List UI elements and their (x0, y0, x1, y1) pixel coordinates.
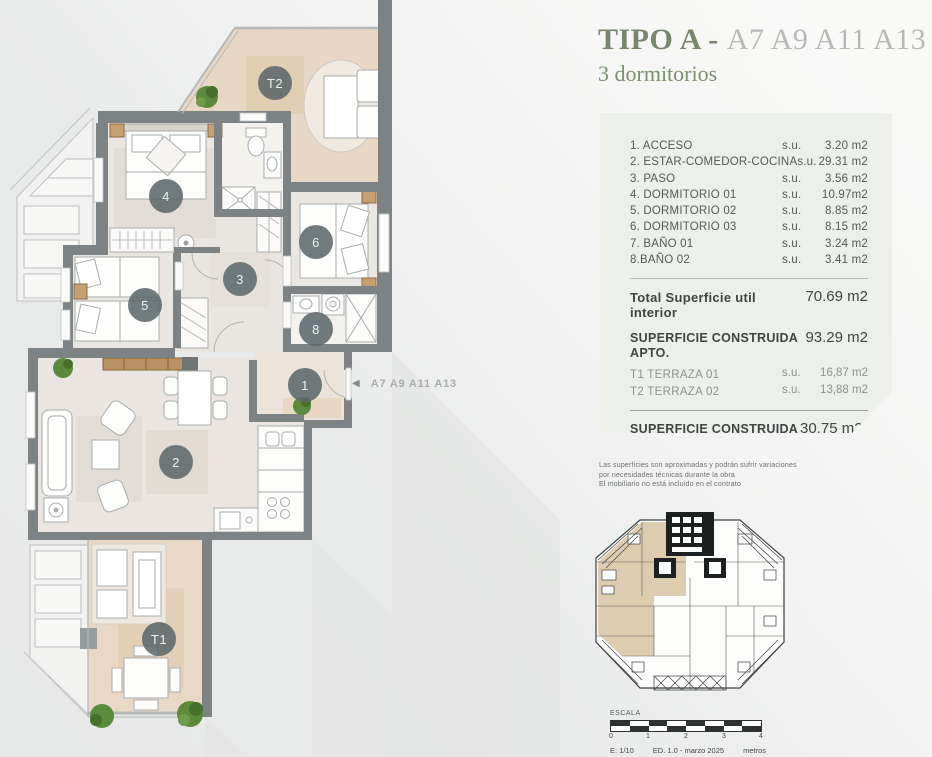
surface-table-card: 1. ACCESOs.u.3.20 m2 2. ESTAR-COMEDOR-CO… (600, 113, 892, 433)
room-marker-2: 2 (159, 445, 193, 479)
key-plan (588, 506, 792, 707)
table-row: 2. ESTAR-COMEDOR-COCINAs.u.29.31 m2 (630, 154, 868, 170)
plant-living (53, 358, 73, 378)
plant-t2 (196, 86, 218, 108)
scale-title: ESCALA (610, 710, 766, 717)
scale-bar: ESCALA 0 1 2 3 4 E: 1/10 ED. 1.0 - marzo… (610, 710, 766, 755)
total-util-row: Total Superficie util interior 70.69 m2 (630, 288, 868, 320)
divider (630, 410, 868, 411)
brochure-page: { "header": { "title_main": "TIPO A -", … (0, 0, 932, 757)
scale-bar-graphic (610, 720, 762, 732)
table-row: 8.BAÑO 02s.u.3.41 m2 (630, 252, 868, 268)
table-row: 5. DORMITORIO 02s.u.8.85 m2 (630, 203, 868, 219)
unit-list: A7 A9 A11 A13 (727, 23, 927, 56)
room-marker-5: 5 (128, 288, 162, 322)
room-marker-1: 1 (288, 368, 322, 402)
room-marker-4: 4 (149, 179, 183, 213)
construida-terrazas-row: SUPERFICIE CONSTRUIDA TERRAZAS 30,75 m2 (630, 420, 868, 452)
room-marker-8: 8 (299, 312, 333, 346)
t2-lounge-set (304, 60, 381, 152)
terraza1-row: T1 TERRAZA 01 s.u. 16,87 m2 (630, 367, 868, 383)
header: TIPO A - A7 A9 A11 A13 3 dormitorios (598, 24, 928, 87)
left-arrow-icon: ◀ (352, 379, 360, 389)
entry-arrow-label: ◀ A7 A9 A11 A13 (352, 376, 457, 392)
table-row: 7. BAÑO 01s.u.3.24 m2 (630, 236, 868, 252)
page-title: TIPO A - A7 A9 A11 A13 (598, 24, 928, 56)
type-name: TIPO A - (598, 23, 719, 56)
room-marker-t1: T1 (142, 622, 176, 656)
scale-edition: ED. 1.0 - marzo 2025 (653, 746, 724, 755)
plant-t1-right (177, 701, 203, 727)
room-marker-6: 6 (299, 225, 333, 259)
terraza2-row: T2 TERRAZA 02 s.u. 13,88 m2 (630, 384, 868, 400)
scale-units: metros (743, 746, 766, 755)
scale-ticks: 0 1 2 3 4 (610, 733, 762, 742)
plant-t1-left (90, 704, 114, 728)
table-row: 6. DORMITORIO 03s.u.8.15 m2 (630, 219, 868, 235)
divider (630, 278, 868, 279)
room-marker-t2: T2 (258, 66, 292, 100)
page-subtitle: 3 dormitorios (598, 61, 928, 87)
table-row: 3. PASOs.u.3.56 m2 (630, 171, 868, 187)
construida-apto-row: SUPERFICIE CONSTRUIDA APTO. 93.29 m2 (630, 329, 868, 361)
floor-plan: T2 4 6 3 5 8 1 2 T1 ◀ A7 A9 A11 A13 (0, 0, 580, 757)
table-row: 4. DORMITORIO 01s.u.10.97m2 (630, 187, 868, 203)
room-marker-3: 3 (223, 262, 257, 296)
table-row: 1. ACCESOs.u.3.20 m2 (630, 138, 868, 154)
disclaimer-note: Las superficies son aproximadas y podrán… (599, 461, 797, 490)
scale-ratio: E: 1/10 (610, 746, 634, 755)
scale-footer: E: 1/10 ED. 1.0 - marzo 2025 metros (610, 746, 766, 755)
key-plan-drawing (588, 506, 792, 702)
unit-codes-label: A7 A9 A11 A13 (371, 378, 457, 390)
